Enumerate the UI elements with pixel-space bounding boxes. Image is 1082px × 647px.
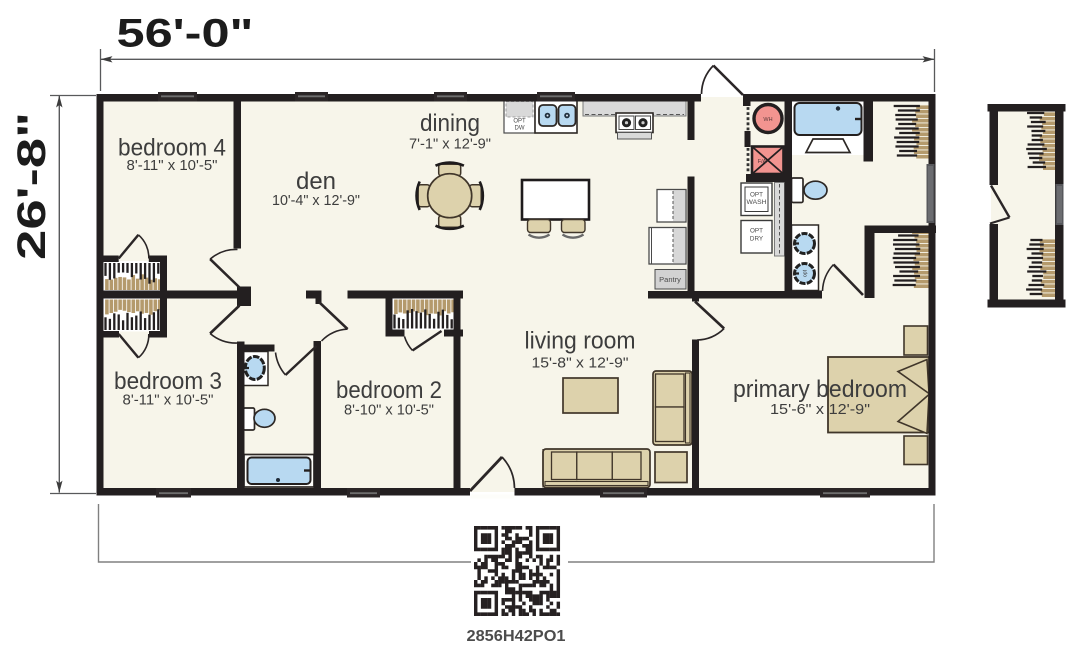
svg-text:opt: opt bbox=[803, 269, 809, 277]
svg-text:dining: dining bbox=[420, 110, 480, 137]
svg-text:10'-4" x 12'-9": 10'-4" x 12'-9" bbox=[272, 193, 360, 209]
svg-text:den: den bbox=[296, 168, 336, 195]
svg-text:26'-8": 26'-8" bbox=[10, 112, 54, 260]
svg-text:primary bedroom: primary bedroom bbox=[733, 376, 907, 403]
svg-text:7'-1" x 12'-9": 7'-1" x 12'-9" bbox=[409, 137, 491, 153]
svg-text:OPT: OPT bbox=[750, 192, 763, 199]
svg-text:bedroom 3: bedroom 3 bbox=[114, 368, 222, 395]
svg-text:15'-6" x 12'-9": 15'-6" x 12'-9" bbox=[770, 402, 870, 418]
svg-text:Pantry: Pantry bbox=[659, 275, 681, 284]
svg-text:WH: WH bbox=[763, 117, 772, 123]
svg-text:8'-11" x 10'-5": 8'-11" x 10'-5" bbox=[127, 158, 218, 174]
svg-text:bedroom 2: bedroom 2 bbox=[336, 377, 442, 404]
svg-text:15'-8" x 12'-9": 15'-8" x 12'-9" bbox=[532, 356, 629, 372]
svg-text:F/A: F/A bbox=[758, 159, 767, 165]
svg-text:56'-0": 56'-0" bbox=[117, 12, 254, 56]
svg-text:DW: DW bbox=[515, 126, 525, 132]
svg-text:living room: living room bbox=[525, 328, 636, 355]
svg-text:8'-10" x 10'-5": 8'-10" x 10'-5" bbox=[344, 403, 434, 419]
svg-text:WASH: WASH bbox=[747, 199, 767, 206]
svg-text:2856H42PO1: 2856H42PO1 bbox=[467, 628, 566, 645]
svg-text:OPT: OPT bbox=[750, 228, 763, 235]
svg-text:OPT: OPT bbox=[513, 119, 526, 125]
svg-text:DRY: DRY bbox=[750, 236, 764, 243]
svg-text:8'-11" x 10'-5": 8'-11" x 10'-5" bbox=[123, 393, 214, 409]
